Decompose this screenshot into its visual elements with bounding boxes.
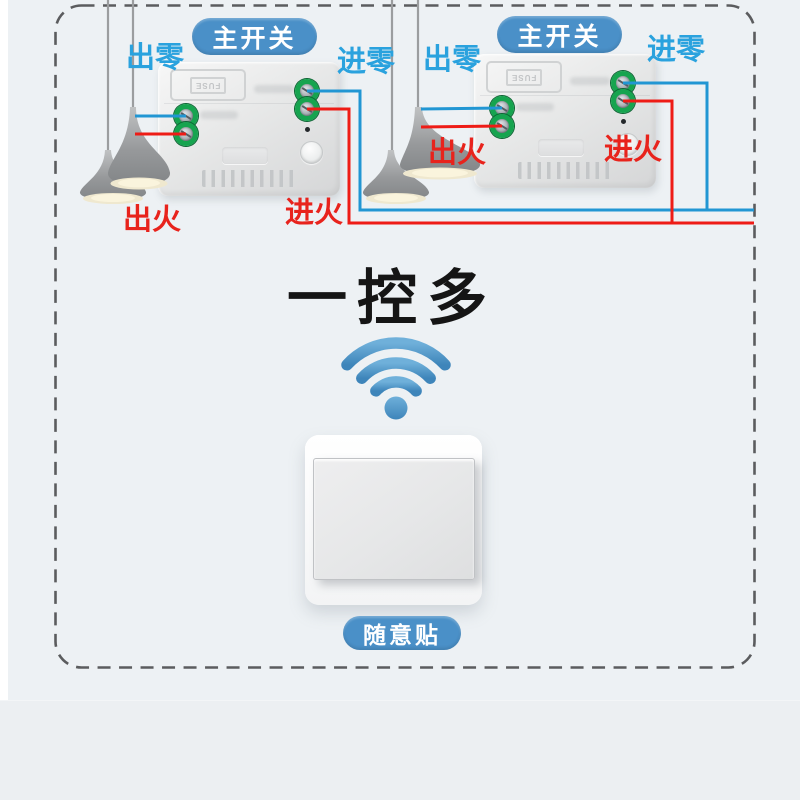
switch-rocker xyxy=(313,458,475,580)
product-diagram: 一控多 FUSE xyxy=(0,0,800,800)
fuse-symbol: FUSE xyxy=(190,77,225,94)
terminal-live-out xyxy=(490,114,514,138)
label-neutral-in-left: 进零 xyxy=(337,48,395,77)
label-recess xyxy=(222,147,268,164)
receiver-module-left: FUSE xyxy=(158,62,340,196)
terminal-live-in xyxy=(611,89,635,113)
fuse-label: FUSE xyxy=(195,81,220,89)
mount-tab xyxy=(546,180,582,207)
main-switch-badge-left: 主开关 xyxy=(192,18,317,55)
label-live-out-left: 出火 xyxy=(123,206,181,235)
vent-slots xyxy=(202,170,299,187)
label-live-in-left: 进火 xyxy=(285,199,343,228)
wifi-layer xyxy=(0,0,800,800)
label-neutral-out-right: 出零 xyxy=(423,46,481,75)
fuse-symbol: FUSE xyxy=(506,69,541,86)
mount-hole xyxy=(558,187,570,199)
molded-marking xyxy=(200,111,238,119)
stick-anywhere-badge: 随意贴 xyxy=(343,616,461,650)
led-indicator xyxy=(621,119,626,124)
terminal-live-in xyxy=(295,97,319,121)
mount-tab xyxy=(230,188,266,215)
main-switch-badge-right: 主开关 xyxy=(497,16,622,53)
pairing-button xyxy=(300,141,323,164)
led-indicator xyxy=(305,127,310,132)
pendant-lamp xyxy=(80,150,146,204)
border-layer xyxy=(0,0,800,800)
label-neutral-out-left: 出零 xyxy=(126,44,184,73)
vent-slots xyxy=(518,162,615,179)
fuse-label: FUSE xyxy=(511,73,536,81)
molded-marking xyxy=(516,103,554,111)
molded-marking xyxy=(254,85,294,93)
left-white-sliver xyxy=(0,0,8,700)
label-neutral-in-right: 进零 xyxy=(647,36,705,65)
label-recess xyxy=(538,139,584,156)
label-live-in-right: 进火 xyxy=(604,136,662,165)
lamps-and-wires-layer xyxy=(0,0,800,800)
pendant-lamp xyxy=(363,150,429,204)
receiver-module-right: FUSE xyxy=(474,54,656,188)
mount-hole xyxy=(242,195,254,207)
bottom-strip xyxy=(0,700,800,800)
label-live-out-right: 出火 xyxy=(428,139,486,168)
one-control-many-title: 一控多 xyxy=(287,250,497,337)
molded-marking xyxy=(570,77,610,85)
wifi-icon xyxy=(347,343,445,419)
terminal-live-out xyxy=(174,122,198,146)
fuse-compartment: FUSE xyxy=(486,61,562,93)
wall-switch-panel xyxy=(305,435,482,605)
